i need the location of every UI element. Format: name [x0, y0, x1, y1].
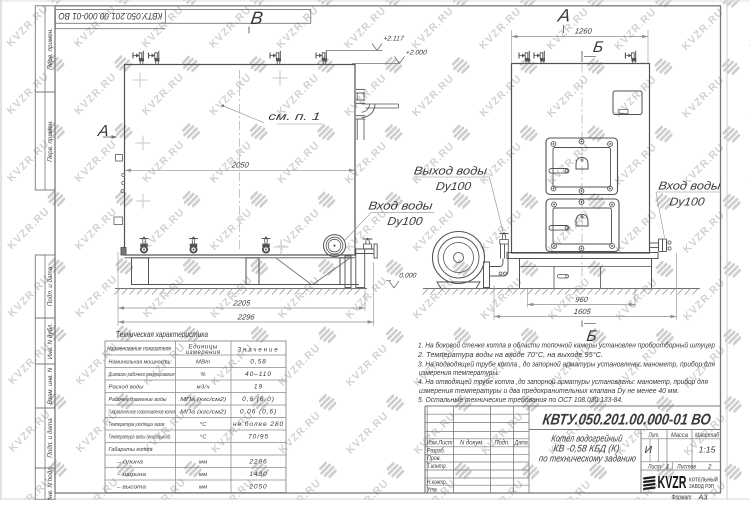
svg-text:5. Остальные технические треб: 5. Остальные технические требования по О… [418, 396, 623, 404]
svg-text:– ширина: – ширина [116, 472, 147, 478]
svg-text:Рабочее давление воды: Рабочее давление воды [109, 397, 168, 403]
svg-text:70/95: 70/95 [248, 434, 269, 441]
svg-text:1430: 1430 [249, 471, 267, 478]
svg-text:МВт: МВт [196, 360, 211, 366]
svg-text:Разраб.: Разраб. [427, 448, 445, 455]
svg-text:Т.контр.: Т.контр. [427, 463, 447, 470]
svg-text:МПа (кгс/см2): МПа (кгс/см2) [180, 397, 226, 403]
svg-text:960: 960 [575, 295, 590, 304]
svg-text:– высота: – высота [116, 485, 147, 491]
svg-text:измерения температуры.: измерения температуры. [419, 370, 499, 377]
svg-text:Утв.: Утв. [426, 486, 438, 493]
svg-text:Инв. N подл.: Инв. N подл. [46, 466, 54, 500]
svg-text:4. На отводящей трубе котла ,: 4. На отводящей трубе котла ,до запорной… [418, 378, 708, 386]
svg-text:1: 1 [666, 463, 669, 470]
svg-text:2050: 2050 [230, 161, 250, 170]
svg-text:Дата: Дата [514, 440, 528, 447]
svg-text:И: И [645, 444, 653, 456]
svg-text:Температура воды (вход/выход): Температура воды (вход/выход) [109, 435, 171, 441]
svg-text:3. На подводящей трубе котла: 3. На подводящей трубе котла , до запорн… [418, 361, 715, 369]
svg-text:Лит.: Лит. [648, 432, 660, 439]
svg-text:2205: 2205 [232, 299, 252, 308]
svg-text:по техническому заданию: по техническому заданию [538, 454, 637, 465]
svg-text:мм: мм [199, 472, 208, 478]
svg-text:Перв. примен.: Перв. примен. [47, 28, 54, 70]
svg-text:Габариты котла: Габариты котла [109, 447, 154, 453]
svg-text:КВТУ.050.201.00.000-01 ВО: КВТУ.050.201.00.000-01 ВО [58, 11, 162, 21]
svg-text:+2.000: +2.000 [405, 50, 427, 57]
svg-text:см. п. 1: см. п. 1 [268, 111, 322, 123]
svg-text:2: 2 [707, 463, 712, 470]
svg-text:1:15: 1:15 [699, 445, 716, 455]
svg-text:А3: А3 [697, 495, 707, 501]
svg-text:Наименование показателя: Наименование показателя [107, 347, 172, 353]
svg-text:Подп. и дата: Подп. и дата [46, 418, 54, 458]
svg-text:мм: мм [199, 460, 208, 466]
svg-text:0,58: 0,58 [250, 359, 266, 366]
svg-text:0,06 (0,6): 0,06 (0,6) [240, 409, 277, 416]
svg-text:1. На боковой стенке котла в: 1. На боковой стенке котла в области топ… [418, 342, 715, 350]
svg-text:ЗАВОД РЭП: ЗАВОД РЭП [689, 484, 714, 490]
svg-text:МПа (кгс/см2): МПа (кгс/см2) [180, 410, 226, 416]
svg-text:Подп. и дата: Подп. и дата [46, 266, 54, 306]
svg-text:измерения температуры и два пр: измерения температуры и два предохраните… [419, 387, 679, 395]
svg-text:Расход воды: Расход воды [109, 385, 145, 391]
svg-text:Изм.Лист: Изм.Лист [427, 440, 453, 447]
svg-text:°С: °С [200, 435, 208, 441]
svg-text:Перв. примен.: Перв. примен. [47, 120, 54, 162]
svg-text:2050: 2050 [248, 484, 267, 491]
svg-text:КВТУ.050.201.00.000-01 ВО: КВТУ.050.201.00.000-01 ВО [541, 412, 711, 429]
svg-text:не более 280: не более 280 [233, 420, 284, 428]
svg-text:Вход воды: Вход воды [368, 201, 434, 213]
svg-text:°С: °С [200, 422, 208, 428]
svg-text:Пров.: Пров. [427, 455, 441, 462]
svg-text:м3/ч: м3/ч [197, 385, 210, 391]
svg-text:Масштаб: Масштаб [695, 432, 719, 439]
svg-text:Температура уходящих газов: Температура уходящих газов [109, 422, 165, 428]
svg-text:Dy100: Dy100 [387, 216, 424, 228]
svg-text:+2.117: +2.117 [383, 36, 405, 43]
svg-text:Вход воды: Вход воды [658, 181, 722, 193]
svg-text:N докум.: N докум. [460, 440, 484, 447]
svg-text:2. Температура воды на входе: 2. Температура воды на входе 70°С, на вы… [417, 351, 603, 359]
svg-text:Диапазон рабочего регулировани: Диапазон рабочего регулирования [108, 372, 175, 378]
svg-text:Формат: Формат [672, 495, 692, 501]
svg-text:2296: 2296 [248, 459, 267, 466]
svg-text:мм: мм [199, 485, 208, 491]
svg-text:Гидравлическое сопротивление к: Гидравлическое сопротивление котла [109, 410, 176, 416]
svg-text:Техническая характеристика: Техническая характеристика [116, 330, 209, 339]
svg-text:Значение: Значение [237, 348, 279, 354]
svg-text:%: % [200, 372, 206, 378]
svg-text:Листов: Листов [676, 463, 696, 470]
svg-text:Н.контр.: Н.контр. [427, 479, 447, 486]
svg-text:1260: 1260 [574, 27, 593, 36]
svg-text:Лист: Лист [647, 463, 661, 470]
svg-text:0.000: 0.000 [399, 273, 417, 280]
svg-text:Dy100: Dy100 [435, 181, 472, 193]
svg-text:Номинальная мощность: Номинальная мощность [109, 360, 171, 366]
svg-text:Подп.: Подп. [495, 440, 510, 447]
svg-text:KVZR: KVZR [658, 472, 687, 492]
svg-text:КОТЕЛЬНЫЙ: КОТЕЛЬНЫЙ [689, 475, 718, 483]
svg-text:Dy100: Dy100 [669, 197, 706, 209]
svg-text:19: 19 [254, 384, 263, 391]
svg-text:40–110: 40–110 [245, 371, 272, 378]
svg-text:Инв. N дубл.: Инв. N дубл. [46, 323, 54, 359]
svg-text:Выход воды: Выход воды [413, 166, 488, 178]
svg-text:1605: 1605 [573, 307, 592, 316]
svg-text:0,6 (6,0): 0,6 (6,0) [242, 396, 275, 403]
svg-text:Взам. инв. N: Взам. инв. N [47, 367, 54, 404]
svg-text:– длина: – длина [116, 460, 144, 466]
svg-text:измерения: измерения [186, 350, 221, 356]
svg-text:2296: 2296 [236, 313, 256, 322]
svg-text:Масса: Масса [671, 432, 689, 439]
